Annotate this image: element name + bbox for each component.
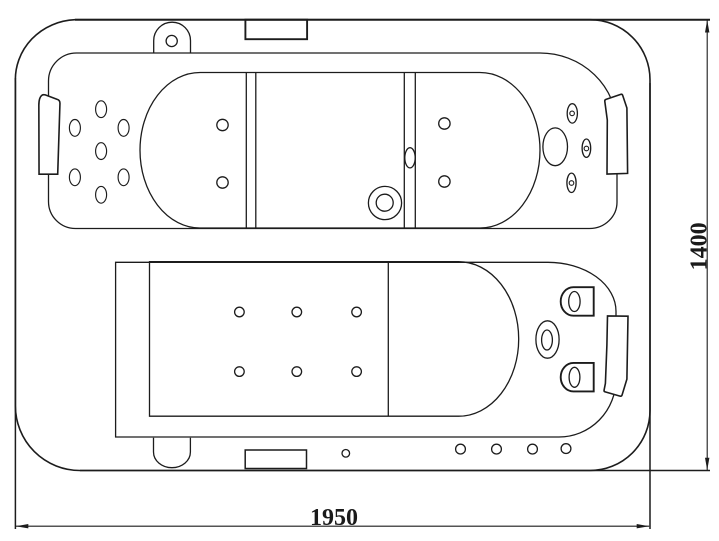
svg-text:1950: 1950 (310, 505, 358, 531)
svg-text:1400: 1400 (686, 222, 712, 270)
